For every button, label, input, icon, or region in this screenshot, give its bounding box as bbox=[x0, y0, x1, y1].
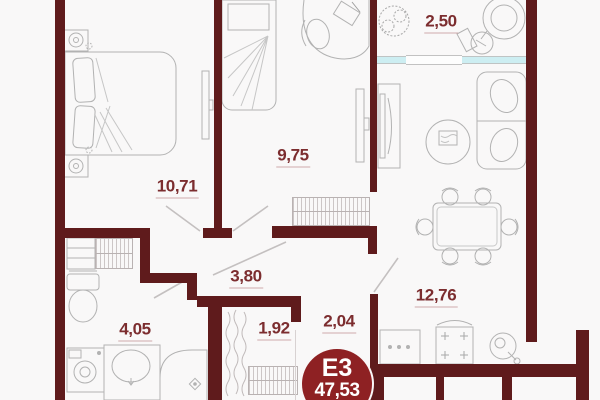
wall-divider-foot bbox=[203, 228, 232, 238]
dining-chairs bbox=[416, 188, 518, 265]
tv-bedroom-large bbox=[202, 71, 213, 139]
room-label-bathroom: 4,05 bbox=[118, 321, 152, 342]
balcony-table bbox=[457, 28, 493, 54]
wall-bath-notch-h bbox=[140, 273, 197, 283]
wall-outer-right bbox=[526, 0, 537, 342]
unit-code: E3 bbox=[302, 355, 372, 381]
plant bbox=[379, 6, 409, 36]
room-label-closet: 1,92 bbox=[257, 320, 291, 341]
closet-hangers bbox=[226, 310, 246, 396]
toilet bbox=[67, 271, 99, 322]
coffee-table bbox=[426, 120, 470, 164]
room-label-kitchen-living: 12,76 bbox=[415, 287, 458, 308]
nightstand-top bbox=[64, 30, 92, 51]
room-label-bedroom-small: 9,75 bbox=[276, 147, 310, 168]
room-label-hall-entry: 2,04 bbox=[322, 313, 356, 334]
wall-hall-cap bbox=[291, 296, 301, 322]
wall-stub-a bbox=[368, 238, 377, 254]
sofa bbox=[477, 72, 526, 169]
floor-plan: 2,50 9,75 10,71 3,80 12,76 4,05 1,92 2,0… bbox=[0, 0, 600, 400]
wall-bath-notch-v2 bbox=[187, 283, 197, 300]
single-bed bbox=[222, 0, 276, 110]
wall-kitchen-bottom bbox=[370, 364, 589, 377]
hallway-wardrobe bbox=[292, 197, 370, 226]
bathroom-cabinet bbox=[95, 238, 133, 269]
dining-table bbox=[433, 203, 501, 250]
shower bbox=[160, 350, 207, 400]
washing-machine bbox=[67, 348, 104, 392]
room-label-bedroom-large: 10,71 bbox=[156, 178, 199, 199]
room-label-balcony: 2,50 bbox=[424, 13, 458, 34]
room-label-hallway: 3,80 bbox=[229, 268, 263, 289]
unit-total-area: 47,53 bbox=[302, 381, 372, 400]
wall-right-stub bbox=[576, 330, 589, 400]
tv-bedroom-small bbox=[356, 89, 369, 162]
kitchen-sink bbox=[490, 333, 520, 364]
wall-stub-b1 bbox=[377, 377, 384, 400]
balcony-door bbox=[406, 55, 462, 65]
wall-living-divider bbox=[370, 0, 377, 192]
desk bbox=[303, 0, 369, 59]
closet-partition bbox=[295, 330, 296, 400]
wall-bedroom-divider bbox=[214, 0, 222, 230]
desk-chair bbox=[302, 17, 333, 52]
bathroom-shelf bbox=[67, 238, 95, 269]
stove bbox=[436, 321, 473, 365]
door-bedroom-large bbox=[166, 206, 200, 231]
kitchen-counter bbox=[380, 330, 420, 364]
closet-shoe-rack bbox=[248, 366, 298, 395]
tv-console bbox=[378, 84, 400, 168]
door-bedroom-small bbox=[233, 206, 268, 231]
wall-bedroom1-bottom bbox=[55, 228, 150, 238]
bathroom-sink bbox=[104, 345, 160, 400]
double-bed bbox=[65, 52, 176, 155]
unit-badge: E3 47,53 bbox=[302, 349, 372, 400]
wall-stub-b3 bbox=[502, 377, 512, 400]
nightstand-bottom bbox=[64, 147, 92, 177]
door-kitchen bbox=[374, 258, 398, 292]
wall-closet-left bbox=[208, 296, 222, 400]
wall-stub-b2 bbox=[436, 377, 444, 400]
wall-outer-left bbox=[55, 0, 65, 400]
wall-bedroom2-bottom bbox=[272, 226, 377, 238]
